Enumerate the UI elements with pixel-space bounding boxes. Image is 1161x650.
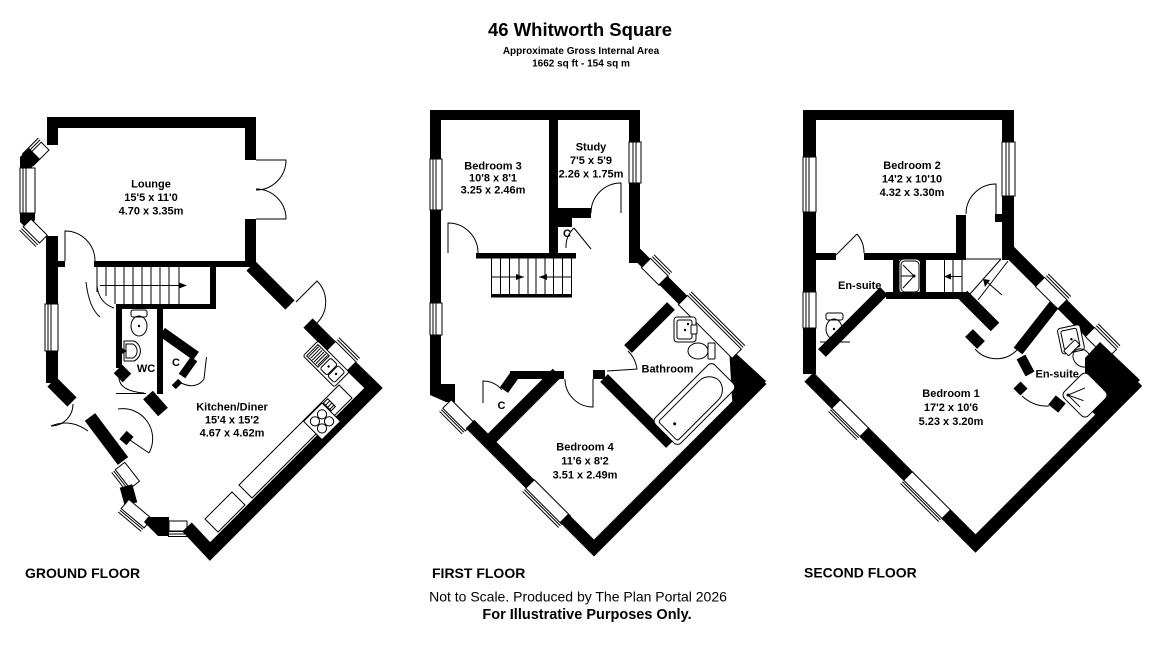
svg-text:Bedroom 1: Bedroom 1 — [922, 388, 979, 400]
svg-text:FIRST FLOOR: FIRST FLOOR — [432, 565, 525, 581]
svg-text:11'6 x 8'2: 11'6 x 8'2 — [561, 456, 608, 468]
svg-text:Kitchen/Diner: Kitchen/Diner — [196, 402, 268, 414]
svg-text:SECOND FLOOR: SECOND FLOOR — [804, 565, 917, 581]
svg-text:En-suite: En-suite — [838, 280, 881, 292]
svg-text:Lounge: Lounge — [131, 179, 171, 191]
svg-text:17'2 x 10'6: 17'2 x 10'6 — [924, 402, 978, 414]
svg-text:C: C — [172, 357, 180, 369]
svg-text:15'5 x 11'0: 15'5 x 11'0 — [124, 192, 178, 204]
svg-text:C: C — [498, 400, 506, 412]
svg-text:Bedroom 2: Bedroom 2 — [883, 160, 940, 172]
svg-text:Bedroom 4: Bedroom 4 — [556, 442, 614, 454]
svg-text:3.25 x 2.46m: 3.25 x 2.46m — [461, 185, 526, 197]
svg-text:2.26 x 1.75m: 2.26 x 1.75m — [559, 169, 624, 181]
svg-text:Approximate Gross Internal Are: Approximate Gross Internal Area — [503, 46, 660, 57]
svg-text:Not to Scale. Produced by The: Not to Scale. Produced by The Plan Porta… — [429, 589, 727, 605]
svg-text:Bathroom: Bathroom — [642, 364, 694, 376]
svg-text:Study: Study — [576, 142, 607, 154]
svg-text:4.70 x 3.35m: 4.70 x 3.35m — [119, 206, 184, 218]
svg-text:For Illustrative Purposes Only: For Illustrative Purposes Only. — [482, 607, 691, 623]
svg-text:3.51 x 2.49m: 3.51 x 2.49m — [553, 470, 618, 482]
svg-text:C: C — [563, 228, 571, 240]
svg-text:5.23 x 3.20m: 5.23 x 3.20m — [919, 416, 984, 428]
svg-text:7'5 x 5'9: 7'5 x 5'9 — [570, 155, 612, 167]
svg-text:WC: WC — [137, 363, 155, 375]
svg-text:4.32 x 3.30m: 4.32 x 3.30m — [880, 187, 945, 199]
svg-text:1662 sq ft - 154 sq m: 1662 sq ft - 154 sq m — [532, 59, 630, 70]
svg-text:15'4 x 15'2: 15'4 x 15'2 — [205, 415, 259, 427]
svg-text:10'8 x 8'1: 10'8 x 8'1 — [469, 173, 517, 185]
svg-text:Bedroom 3: Bedroom 3 — [464, 161, 521, 173]
svg-text:En-suite: En-suite — [1036, 369, 1079, 381]
svg-text:GROUND FLOOR: GROUND FLOOR — [25, 565, 140, 581]
svg-text:4.67 x 4.62m: 4.67 x 4.62m — [200, 428, 265, 440]
svg-text:46 Whitworth Square: 46 Whitworth Square — [488, 19, 672, 40]
svg-text:14'2 x 10'10: 14'2 x 10'10 — [882, 174, 942, 186]
